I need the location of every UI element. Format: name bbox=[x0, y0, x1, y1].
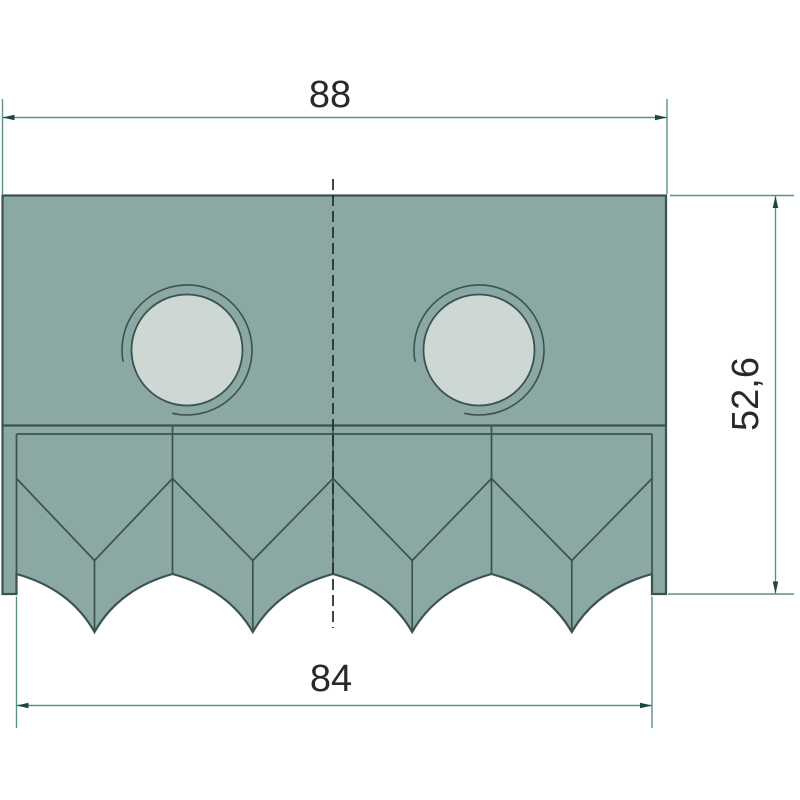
dimension-top-width: 88 bbox=[3, 74, 668, 194]
arrow-down-icon bbox=[773, 582, 779, 594]
dimension-bottom-width: 84 bbox=[17, 597, 653, 729]
dim-label-top-width: 88 bbox=[309, 74, 351, 116]
arrow-left-icon bbox=[3, 115, 15, 121]
arrow-up-icon bbox=[773, 196, 779, 208]
dimension-side-height: 52,6 bbox=[668, 196, 794, 595]
technical-drawing: 88 84 52,6 bbox=[0, 0, 800, 800]
arrow-right-icon bbox=[655, 115, 667, 121]
part-body bbox=[3, 179, 667, 632]
dim-label-side-height: 52,6 bbox=[725, 357, 767, 431]
part-silhouette bbox=[3, 196, 667, 633]
dim-label-bottom-width: 84 bbox=[310, 658, 352, 700]
hole-core-right bbox=[424, 295, 535, 406]
arrow-right-icon bbox=[640, 703, 652, 709]
arrow-left-icon bbox=[17, 703, 29, 709]
technical-drawing-canvas: 88 84 52,6 bbox=[0, 0, 800, 800]
hole-core-left bbox=[132, 295, 243, 406]
